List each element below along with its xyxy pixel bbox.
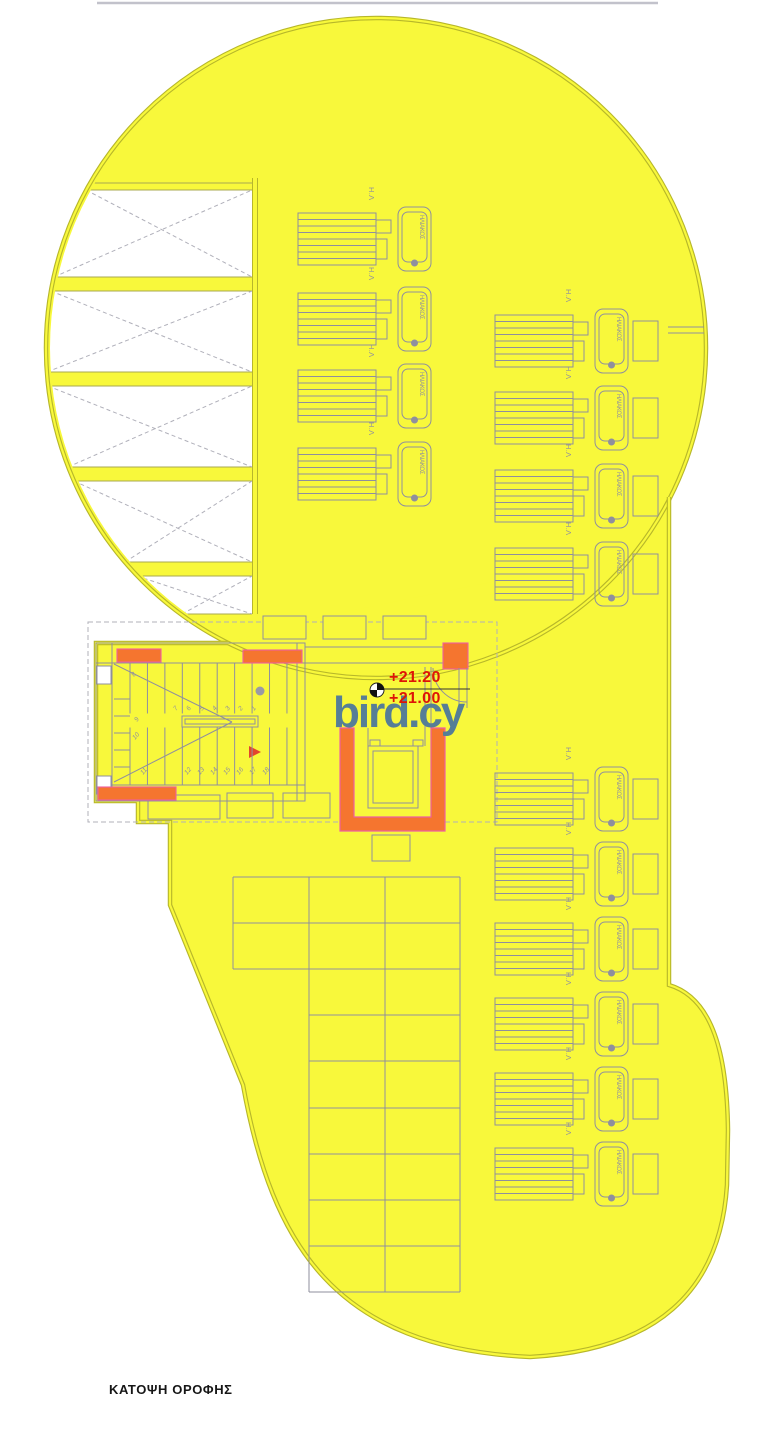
solar-unit-label: Η.Λ bbox=[564, 822, 573, 835]
drawing-title: ΚΑΤΟΨΗ ΟΡΟΦΗΣ bbox=[109, 1382, 233, 1397]
solar-tank-label: ΗΛΙΑΚΟΣ bbox=[418, 450, 424, 475]
solar-unit-label: Η.Λ bbox=[367, 344, 376, 357]
stair-newel-dot bbox=[256, 687, 265, 696]
solar-tank-label: ΗΛΙΑΚΟΣ bbox=[615, 1000, 621, 1025]
solar-tank-label: ΗΛΙΑΚΟΣ bbox=[418, 215, 424, 240]
level-label-upper: +21.20 bbox=[389, 669, 441, 687]
solar-unit-label: Η.Λ bbox=[564, 1047, 573, 1060]
roof-plan-page: 765432189101112131415161718 bbox=[0, 0, 780, 1433]
level-label-lower: +21.00 bbox=[389, 690, 441, 708]
solar-unit-label: Η.Λ bbox=[367, 422, 376, 435]
solar-unit-label: Η.Λ bbox=[367, 267, 376, 280]
solar-unit-label: Η.Λ bbox=[367, 187, 376, 200]
solar-unit-label: Η.Λ bbox=[564, 289, 573, 302]
solar-tank-label: ΗΛΙΑΚΟΣ bbox=[615, 1075, 621, 1100]
solar-unit-label: Η.Λ bbox=[564, 1122, 573, 1135]
solar-unit-label: Η.Λ bbox=[564, 444, 573, 457]
roof-curb-row bbox=[263, 616, 426, 639]
solar-tank-label: ΗΛΙΑΚΟΣ bbox=[615, 925, 621, 950]
wall-fill-orange bbox=[243, 650, 302, 663]
solar-unit-label: Η.Λ bbox=[564, 522, 573, 535]
wall-fill-orange bbox=[98, 787, 176, 800]
stair-window bbox=[97, 666, 111, 684]
solar-unit-label: Η.Λ bbox=[564, 972, 573, 985]
solar-unit-label: Η.Λ bbox=[564, 366, 573, 379]
solar-unit-label: Η.Λ bbox=[564, 747, 573, 760]
solar-tank-label: ΗΛΙΑΚΟΣ bbox=[615, 394, 621, 419]
wall-fill-orange bbox=[117, 649, 161, 662]
solar-tank-label: ΗΛΙΑΚΟΣ bbox=[615, 317, 621, 342]
solar-tank-label: ΗΛΙΑΚΟΣ bbox=[418, 372, 424, 397]
solar-tank-label: ΗΛΙΑΚΟΣ bbox=[615, 775, 621, 800]
solar-tank-label: ΗΛΙΑΚΟΣ bbox=[615, 472, 621, 497]
solar-tank-label: ΗΛΙΑΚΟΣ bbox=[615, 850, 621, 875]
solar-tank-label: ΗΛΙΑΚΟΣ bbox=[615, 1150, 621, 1175]
solar-tank-label: ΗΛΙΑΚΟΣ bbox=[615, 550, 621, 575]
solar-tank-label: ΗΛΙΑΚΟΣ bbox=[418, 295, 424, 320]
wall-fill-orange bbox=[443, 643, 468, 669]
solar-unit-label: Η.Λ bbox=[564, 897, 573, 910]
